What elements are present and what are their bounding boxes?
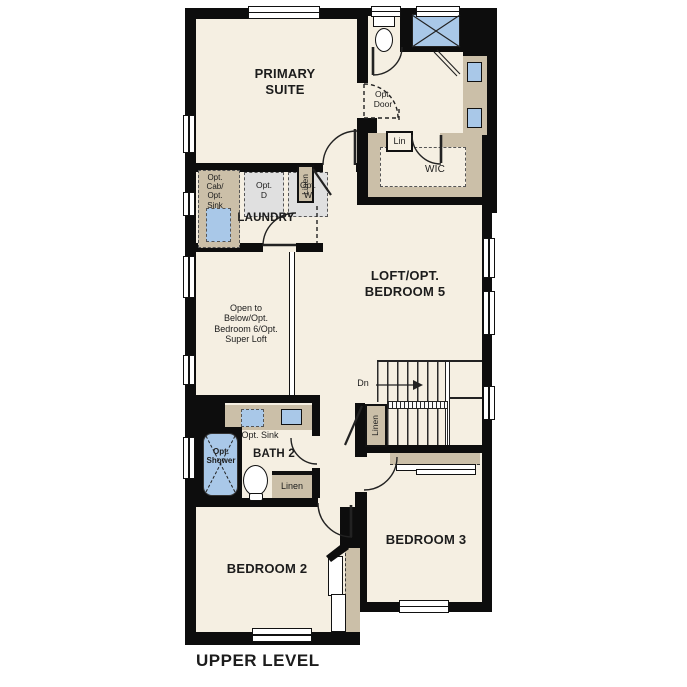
bath2-window-left xyxy=(183,437,195,479)
bath2-toilet-base xyxy=(249,493,263,501)
shower-window xyxy=(416,6,460,17)
bedroom2-closet-door-2 xyxy=(331,594,346,632)
bath2-linen-closet: Linen xyxy=(272,471,312,498)
hall-linen-label: Linen xyxy=(301,174,311,195)
bath2-linen-label: Linen xyxy=(281,481,303,491)
lin-closet: Lin xyxy=(386,131,413,152)
loft-floor-upper xyxy=(330,205,482,252)
primary-suite-window-top xyxy=(248,6,320,19)
primary-suite-doorway xyxy=(323,163,356,172)
hall-linen-closet: Linen xyxy=(297,165,314,203)
toilet-bowl xyxy=(375,28,393,52)
stairs-handrail xyxy=(387,401,448,409)
open-to-below-railing xyxy=(289,252,295,395)
bath2-wall-chunk xyxy=(196,403,225,427)
bedroom-hall-floor xyxy=(320,395,355,507)
water-closet-window xyxy=(371,6,401,17)
primary-sink-1 xyxy=(467,62,482,82)
wic-doorway xyxy=(412,133,440,147)
bedroom2-closet xyxy=(345,548,360,632)
primary-suite-floor xyxy=(196,19,357,163)
bedroom3-window xyxy=(399,600,449,613)
primary-shower xyxy=(412,14,460,47)
bath2-sink xyxy=(281,409,302,425)
primary-sink-2 xyxy=(467,108,482,128)
open-below-window-left-1 xyxy=(183,256,195,298)
bath2-opt-shower xyxy=(203,433,238,496)
bath2-doorway xyxy=(312,436,320,468)
laundry-doorway xyxy=(263,243,296,252)
bedroom2-closet-door-1 xyxy=(328,556,343,596)
stairs-window-right xyxy=(483,386,495,420)
stairs-linen-label: Linen xyxy=(371,415,381,436)
open-to-below-floor xyxy=(196,252,289,395)
laundry-opt-sink xyxy=(206,208,231,242)
bedroom-divider-wall xyxy=(340,507,351,548)
loft-window-right-2 xyxy=(483,291,495,335)
stairs-linen-closet: Linen xyxy=(365,404,387,447)
wic-hanging-rod xyxy=(380,147,466,187)
bedroom2-doorway xyxy=(318,498,352,507)
plan-title: UPPER LEVEL xyxy=(196,651,396,671)
stairs-lower-run xyxy=(387,409,448,445)
bath2-opt-sink xyxy=(241,409,264,427)
laundry-window-left xyxy=(183,192,195,216)
stairs-landing-step xyxy=(450,397,482,399)
open-below-window-left-2 xyxy=(183,355,195,385)
loft-window-right-1 xyxy=(483,238,495,278)
bedroom2-window xyxy=(252,628,312,642)
lin-label: Lin xyxy=(393,136,405,146)
bedroom3-closet-door-2 xyxy=(416,469,476,475)
primary-bath-floor xyxy=(400,52,463,133)
bedroom2-floor xyxy=(196,507,345,632)
stairs-left-wall xyxy=(355,403,365,453)
floor-plan: Lin Linen Linen Linen xyxy=(0,0,687,687)
primary-suite-window-left xyxy=(183,115,195,153)
opt-dryer-box xyxy=(244,172,284,217)
opt-door-opening xyxy=(357,83,368,118)
stairs-upper-run xyxy=(377,362,447,402)
bath2-toilet-bowl xyxy=(243,465,268,496)
bedroom3-floor xyxy=(367,453,482,602)
bedroom3-doorway xyxy=(355,457,367,492)
